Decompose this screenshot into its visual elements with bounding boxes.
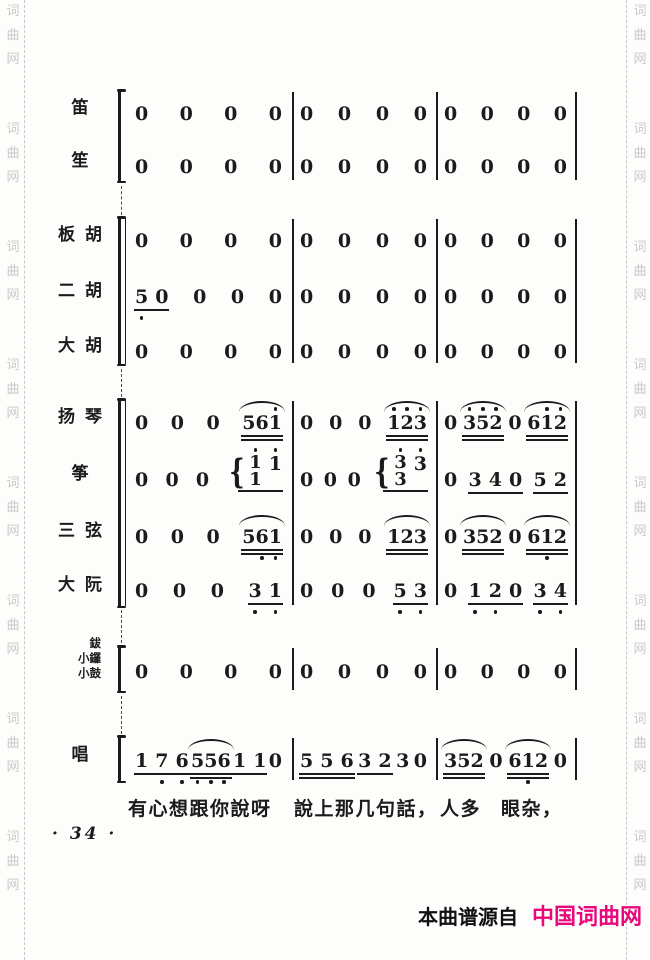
instrument-label-char: 三: [58, 517, 75, 545]
note-group: 0: [224, 157, 237, 177]
measure: 50000: [128, 273, 292, 307]
instrument-label-char: 弦: [85, 517, 102, 545]
note-digit: 0: [348, 470, 361, 490]
note-group: 0: [180, 231, 193, 251]
note-group: 0: [338, 104, 351, 124]
note-digit: 0: [554, 342, 567, 362]
note-group: 0: [269, 104, 282, 124]
note-digit: 0: [300, 581, 313, 601]
watermark-group: 词曲网: [4, 0, 22, 72]
instrument-label: 鈸小鑼小鼓: [56, 636, 104, 681]
lyric-segment: 說上那几句話，: [294, 797, 438, 821]
system-group-vocal: 176556110556323035206120: [118, 736, 580, 782]
watermark-character: 曲: [4, 24, 22, 48]
note-group: 0: [224, 231, 237, 251]
note-digit: 0: [376, 287, 389, 307]
note-digit: 0: [300, 157, 313, 177]
credit: 本曲谱源自 中国词曲网: [418, 899, 642, 931]
watermark-character: 网: [631, 166, 649, 190]
note-digit: 0: [171, 527, 184, 547]
note-digit: 1: [469, 581, 482, 601]
note-digit: 0: [517, 104, 530, 124]
watermark-character: 词: [631, 118, 649, 142]
slur: [188, 739, 234, 750]
measure: 000561: [128, 399, 292, 433]
note-digit: 5: [476, 527, 489, 547]
watermark-character: 曲: [631, 142, 649, 166]
note-group: 0: [376, 231, 389, 251]
note-digit: 0: [196, 470, 209, 490]
system-bracket: [118, 218, 126, 364]
end-barline: [575, 92, 577, 180]
note-digit: 6: [527, 527, 540, 547]
note-digit: 2: [554, 527, 567, 547]
note-digit: 0: [554, 662, 567, 682]
note-digit: 0: [269, 231, 282, 251]
note-group: 352: [463, 527, 503, 547]
note-group: 0: [517, 342, 530, 362]
watermark-group: 词曲网: [631, 472, 649, 544]
note-group: {111: [226, 454, 282, 490]
note-digit: 0: [444, 157, 457, 177]
slur: [239, 515, 285, 526]
note-digit: 5: [457, 751, 470, 771]
staff-row: 000000000000: [128, 328, 574, 362]
note-digit: 0: [224, 662, 237, 682]
end-barline: [575, 648, 577, 690]
note-digit: 0: [554, 751, 567, 771]
note-group: 0: [376, 104, 389, 124]
note-group: 31: [249, 581, 282, 601]
note-digit: 0: [300, 527, 313, 547]
note-digit: 2: [554, 470, 567, 490]
instrument-label-char: 二: [58, 277, 75, 305]
note-group: 0: [414, 751, 427, 771]
measure: 5563230: [294, 737, 436, 771]
end-barline: [575, 401, 577, 605]
instrument-label: 二胡: [56, 277, 104, 305]
note-digit: 6: [340, 751, 353, 771]
note-digit: 5: [320, 751, 333, 771]
note-digit: 0: [508, 413, 521, 433]
note-digit: 0: [444, 662, 457, 682]
note-digit: 6: [527, 413, 540, 433]
note-group: 0: [135, 104, 148, 124]
note-group: 0: [329, 413, 342, 433]
note-group: 0: [300, 157, 313, 177]
note-group: 0: [300, 527, 313, 547]
note-group: 0: [338, 342, 351, 362]
staff-row: 00056100012303520612: [128, 513, 574, 547]
note-digit: 0: [135, 342, 148, 362]
note-group: 0: [224, 104, 237, 124]
note-digit: 0: [165, 470, 178, 490]
system-connector: [121, 369, 122, 397]
note-digit: 0: [180, 231, 193, 251]
system-group-winds: 000000000000000000000000: [118, 90, 580, 182]
slur: [239, 401, 285, 412]
system-bracket: [118, 91, 124, 181]
note-digit: 4: [489, 470, 502, 490]
note-group: 0: [338, 231, 351, 251]
watermark-character: 词: [4, 826, 22, 850]
measure: 03520612: [438, 513, 574, 547]
note-digit: 0: [338, 231, 351, 251]
note-group: 0: [444, 231, 457, 251]
measure: 0000: [294, 273, 436, 307]
note-group: 0: [180, 662, 193, 682]
note-group: 0: [224, 662, 237, 682]
note-digit: 0: [414, 287, 427, 307]
note-digit: 0: [135, 470, 148, 490]
note-digit: 0: [224, 231, 237, 251]
instrument-label-char: 阮: [85, 571, 102, 599]
watermark-group: 词曲网: [4, 236, 22, 308]
note-group: 0: [444, 157, 457, 177]
slur: [441, 739, 487, 750]
score-page: 词曲网词曲网词曲网词曲网词曲网词曲网词曲网词曲网 词曲网词曲网词曲网词曲网词曲网…: [0, 0, 650, 960]
note-group: 0: [224, 342, 237, 362]
note-group: 0: [300, 287, 313, 307]
note-group: 0: [444, 342, 457, 362]
chord-brace: {: [375, 454, 390, 490]
watermark-dashed-line-left: [24, 0, 25, 960]
system-bracket: [118, 400, 126, 606]
note-group: 0: [376, 287, 389, 307]
note-group: 0: [269, 662, 282, 682]
watermark-character: 词: [631, 472, 649, 496]
measure: 0000: [294, 217, 436, 251]
note-digit: 0: [358, 413, 371, 433]
note-group: 0: [517, 231, 530, 251]
note-digit: 5: [300, 751, 313, 771]
note-digit: 0: [338, 342, 351, 362]
measure: 0000: [128, 217, 292, 251]
instrument-label: 大胡: [56, 332, 104, 360]
measure: 0000: [294, 648, 436, 682]
instrument-label-char: 胡: [85, 332, 102, 360]
note-digit: 0: [155, 287, 168, 307]
note-group: 0: [211, 581, 224, 601]
note-group: 0: [481, 342, 494, 362]
staff-row: 0003100053012034: [128, 567, 574, 601]
note-group: 352: [463, 413, 503, 433]
note-digit: 0: [300, 342, 313, 362]
note-digit: 0: [554, 104, 567, 124]
note-group: 0: [508, 413, 521, 433]
note-group: 0: [193, 287, 206, 307]
note-group: 0: [444, 413, 457, 433]
note-digit: 0: [300, 287, 313, 307]
note-digit: 3: [394, 471, 407, 488]
note-group: 0: [180, 342, 193, 362]
staff-row: 00056100012303520612: [128, 399, 574, 433]
note-group: 0: [554, 104, 567, 124]
note-digit: 1: [233, 751, 246, 771]
note-group: 0: [376, 157, 389, 177]
system-bracket: [118, 647, 124, 691]
credit-prefix: 本曲谱源自: [418, 901, 518, 930]
note-group: 0: [517, 104, 530, 124]
note-group: 0: [135, 157, 148, 177]
measure: 0000: [438, 217, 574, 251]
note-digit: 0: [338, 662, 351, 682]
note-digit: 0: [554, 287, 567, 307]
note-digit: 2: [489, 581, 502, 601]
note-group: 0: [300, 662, 313, 682]
note-group: 0: [300, 413, 313, 433]
watermark-character: 网: [631, 756, 649, 780]
note-group: 52: [534, 470, 567, 490]
note-digit: 3: [463, 527, 476, 547]
watermark-character: 网: [4, 520, 22, 544]
watermark-character: 曲: [4, 378, 22, 402]
watermark-character: 词: [631, 590, 649, 614]
note-digit: 0: [135, 527, 148, 547]
measure: 0000: [438, 90, 574, 124]
lyric-segment: 人多: [440, 797, 481, 821]
note-group: 0: [338, 157, 351, 177]
note-group: 0: [554, 287, 567, 307]
note-group: 50: [135, 287, 168, 307]
note-digit: 0: [358, 527, 371, 547]
note-group: 0: [376, 342, 389, 362]
note-group: 123: [387, 413, 427, 433]
note-digit: 1: [541, 527, 554, 547]
note-digit: 0: [193, 287, 206, 307]
note-digit: 0: [517, 157, 530, 177]
staff-row: 000{111000{333034052: [128, 456, 574, 490]
note-group: 0: [414, 231, 427, 251]
watermark-group: 词曲网: [631, 826, 649, 898]
note-digit: 0: [224, 104, 237, 124]
measure: 000{333: [294, 456, 436, 490]
note-digit: 0: [489, 751, 502, 771]
measure: 000561: [128, 513, 292, 547]
measure: 000123: [294, 399, 436, 433]
note-group: 0: [196, 470, 209, 490]
note-digit: 1: [135, 751, 148, 771]
note-digit: 0: [481, 104, 494, 124]
staff-row: 176556110556323035206120: [128, 737, 574, 771]
note-group: 0: [269, 231, 282, 251]
slur: [524, 515, 570, 526]
note-digit: 0: [509, 470, 522, 490]
note-digit: 1: [387, 527, 400, 547]
note-group: 176: [135, 751, 189, 771]
watermark-character: 词: [4, 472, 22, 496]
watermark-character: 曲: [4, 142, 22, 166]
watermark-character: 曲: [631, 378, 649, 402]
note-digit: 1: [541, 413, 554, 433]
system-bracket: [118, 737, 124, 781]
note-digit: 0: [231, 287, 244, 307]
lyric-segment: 眼杂，: [501, 797, 563, 821]
note-digit: 0: [300, 231, 313, 251]
note-group: 0: [414, 342, 427, 362]
watermark-group: 词曲网: [4, 590, 22, 662]
note-digit: 0: [211, 581, 224, 601]
note-group: 0: [554, 751, 567, 771]
note-group: 0: [171, 413, 184, 433]
note-digit: 0: [444, 104, 457, 124]
watermark-group: 词曲网: [4, 118, 22, 190]
note-digit: 5: [394, 581, 407, 601]
note-digit: 0: [180, 342, 193, 362]
watermark-character: 曲: [631, 496, 649, 520]
note-digit: 0: [300, 104, 313, 124]
measure: 0000: [294, 328, 436, 362]
note-digit: 0: [135, 104, 148, 124]
note-group: 0: [414, 104, 427, 124]
note-group: 32: [358, 751, 391, 771]
note-digit: 6: [175, 751, 188, 771]
watermark-group: 词曲网: [4, 472, 22, 544]
measure: 0000: [438, 143, 574, 177]
note-digit: 2: [489, 527, 502, 547]
note-digit: 5: [476, 413, 489, 433]
note-digit: 5: [242, 527, 255, 547]
note-group: 0: [329, 527, 342, 547]
staff-row: 000000000000: [128, 143, 574, 177]
note-digit: 0: [517, 287, 530, 307]
credit-site-link[interactable]: 中国词曲网: [532, 899, 642, 931]
note-group: 0: [517, 287, 530, 307]
note-group: 561: [242, 527, 282, 547]
watermark-character: 网: [4, 638, 22, 662]
note-digit: 0: [338, 157, 351, 177]
watermark-character: 词: [631, 708, 649, 732]
note-group: 0: [135, 581, 148, 601]
note-digit: 3: [414, 527, 427, 547]
note-digit: 6: [217, 751, 230, 771]
note-group: 0: [135, 231, 148, 251]
note-digit: 0: [554, 157, 567, 177]
watermark-character: 网: [631, 520, 649, 544]
note-group: 34: [534, 581, 567, 601]
note-digit: 0: [376, 231, 389, 251]
note-digit: 0: [444, 342, 457, 362]
chord-underline: [238, 490, 283, 492]
chord-stack: 11: [249, 454, 262, 488]
note-group: 352: [444, 751, 484, 771]
note-group: 0: [481, 287, 494, 307]
instrument-label-line: 鈸: [56, 636, 101, 651]
note-digit: 2: [401, 527, 414, 547]
note-digit: 0: [517, 342, 530, 362]
note-digit: 0: [324, 470, 337, 490]
note-group: 0: [207, 527, 220, 547]
instrument-label: 笙: [56, 147, 104, 175]
measure: 000123: [294, 513, 436, 547]
slur: [505, 739, 551, 750]
note-group: 0: [207, 413, 220, 433]
instrument-label-char: 胡: [85, 277, 102, 305]
measure: 0000: [128, 90, 292, 124]
note-digit: 4: [554, 581, 567, 601]
note-group: 0: [414, 157, 427, 177]
note-digit: 0: [444, 287, 457, 307]
watermark-character: 曲: [631, 614, 649, 638]
note-digit: 0: [224, 157, 237, 177]
note-digit: 0: [269, 157, 282, 177]
staff-row: 000000000000: [128, 217, 574, 251]
watermark-character: 曲: [631, 850, 649, 874]
watermark-character: 词: [4, 118, 22, 142]
instrument-label-char: 胡: [85, 221, 102, 249]
note-group: 0: [231, 287, 244, 307]
watermark-character: 网: [4, 402, 22, 426]
measure: 0000: [128, 143, 292, 177]
note-group: 0: [489, 751, 502, 771]
instrument-label-char: 扬: [58, 403, 75, 431]
chord-brace: {: [230, 454, 245, 490]
note-digit: 0: [508, 527, 521, 547]
note-digit: 0: [300, 470, 313, 490]
note-digit: 0: [180, 104, 193, 124]
measure: 000{111: [128, 456, 292, 490]
note-digit: 5: [204, 751, 217, 771]
system-connector: [121, 186, 122, 215]
slur: [460, 515, 506, 526]
watermark-column-right: 词曲网词曲网词曲网词曲网词曲网词曲网词曲网词曲网: [631, 0, 649, 944]
note-digit: 0: [414, 662, 427, 682]
watermark-dashed-line-right: [626, 0, 627, 960]
note-group: 0: [517, 157, 530, 177]
instrument-label: 唱: [56, 741, 104, 769]
chord-underline: [383, 490, 428, 492]
watermark-group: 词曲网: [631, 354, 649, 426]
note-digit: 0: [135, 662, 148, 682]
note-digit: 0: [338, 287, 351, 307]
measure: 0000: [438, 328, 574, 362]
instrument-label: 板胡: [56, 221, 104, 249]
note-group: 0: [180, 157, 193, 177]
note-digit: 0: [376, 662, 389, 682]
watermark-group: 词曲网: [4, 826, 22, 898]
note-digit: 3: [534, 581, 547, 601]
note-group: 0: [348, 470, 361, 490]
note-digit: 0: [481, 342, 494, 362]
note-digit: 1: [387, 413, 400, 433]
watermark-character: 词: [4, 0, 22, 24]
note-digit: 0: [517, 662, 530, 682]
note-group: 0: [135, 662, 148, 682]
watermark-character: 网: [4, 874, 22, 898]
note-group: 0: [135, 342, 148, 362]
note-digit: 0: [481, 231, 494, 251]
instrument-label-char: 板: [58, 221, 75, 249]
note-digit: 0: [207, 527, 220, 547]
note-group: {333: [371, 454, 427, 490]
lyric-segment: 有心想跟你說呀: [128, 797, 272, 821]
note-digit: 2: [401, 413, 414, 433]
system-group-percussion: 000000000000: [118, 646, 580, 692]
note-digit: 3: [469, 470, 482, 490]
watermark-character: 词: [631, 0, 649, 24]
note-group: 0: [135, 470, 148, 490]
measure: 0000: [128, 328, 292, 362]
note-digit: 0: [414, 104, 427, 124]
watermark-group: 词曲网: [631, 590, 649, 662]
instrument-label-char: 大: [58, 571, 75, 599]
watermark-character: 曲: [4, 732, 22, 756]
note-digit: 0: [481, 662, 494, 682]
note-group: 0: [444, 527, 457, 547]
watermark-group: 词曲网: [631, 236, 649, 308]
note-digit: 0: [269, 287, 282, 307]
staff-row: 5000000000000: [128, 273, 574, 307]
